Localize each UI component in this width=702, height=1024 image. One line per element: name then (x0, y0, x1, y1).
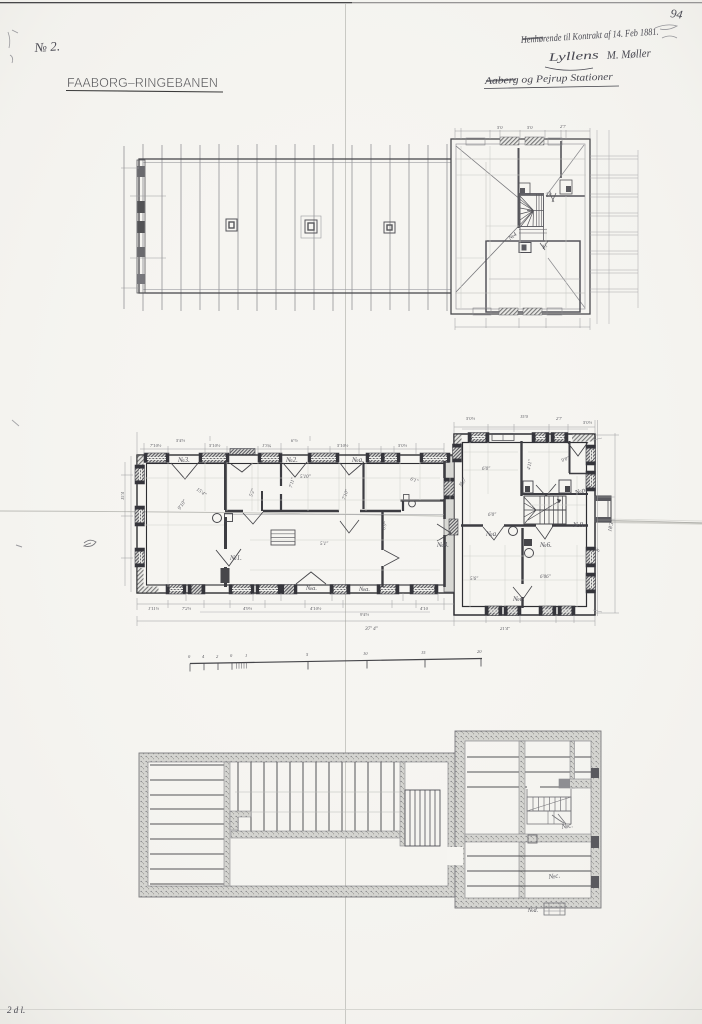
svg-text:5'0: 5'0 (497, 125, 503, 130)
svg-text:6'06": 6'06" (540, 575, 552, 580)
svg-text:9'4½: 9'4½ (360, 612, 370, 617)
svg-text:FAABORG–RINGEBANEN: FAABORG–RINGEBANEN (67, 75, 218, 90)
svg-text:94: 94 (670, 6, 684, 22)
svg-text:№6.: №6. (539, 541, 552, 549)
svg-text:№9.: №9. (572, 521, 585, 529)
svg-text:№a.: №a. (351, 456, 364, 464)
svg-text:M. Møller: M. Møller (606, 48, 652, 62)
svg-text:6'½: 6'½ (291, 438, 298, 443)
svg-text:6'0": 6'0" (482, 467, 491, 472)
svg-text:5'10": 5'10" (300, 475, 312, 480)
svg-text:№d.: №d. (527, 908, 538, 914)
svg-text:1: 1 (245, 653, 247, 658)
svg-text:37' 4": 37' 4" (364, 625, 379, 632)
svg-text:5'0½: 5'0½ (583, 420, 593, 425)
svg-text:15'0: 15'0 (520, 414, 529, 419)
svg-text:№2.: №2. (285, 456, 298, 464)
svg-text:№a.: №a. (305, 585, 317, 592)
svg-text:5'10½: 5'10½ (209, 443, 221, 448)
svg-text:4'9½: 4'9½ (243, 606, 253, 611)
svg-text:5'0: 5'0 (527, 125, 533, 130)
svg-text:№a.: №a. (358, 586, 370, 593)
svg-text:15: 15 (421, 650, 426, 655)
svg-text:2'7: 2'7 (556, 416, 562, 421)
svg-text:5'10½: 5'10½ (337, 443, 349, 448)
svg-text:№4.: №4. (436, 541, 449, 549)
svg-text:20: 20 (477, 649, 482, 654)
svg-text:5'0½: 5'0½ (466, 416, 476, 421)
svg-text:5'1": 5'1" (320, 542, 329, 547)
svg-text:4'10½: 4'10½ (310, 606, 322, 611)
svg-text:4'10: 4'10 (420, 606, 429, 611)
svg-text:№e.: №e. (512, 595, 525, 603)
svg-text:7'2½: 7'2½ (182, 606, 192, 611)
svg-text:2 d l.: 2 d l. (7, 1005, 25, 1015)
svg-text:№a.: №a. (485, 530, 498, 538)
svg-text:№1.: №1. (229, 554, 242, 562)
svg-text:5'6": 5'6" (470, 577, 479, 582)
svg-text:10: 10 (363, 651, 368, 656)
svg-text:1'3¾: 1'3¾ (262, 443, 272, 448)
svg-text:5'4½: 5'4½ (176, 438, 186, 443)
svg-text:№ 2.: № 2. (33, 38, 60, 55)
svg-text:21'4": 21'4" (500, 626, 510, 631)
svg-text:1'11½: 1'11½ (148, 606, 160, 611)
svg-text:6'0": 6'0" (488, 513, 497, 518)
svg-text:7'10½: 7'10½ (150, 443, 162, 448)
svg-text:2'7: 2'7 (560, 124, 566, 129)
svg-text:№3.: №3. (177, 456, 190, 464)
svg-text:15'4: 15'4 (120, 491, 125, 500)
svg-text:5'0½: 5'0½ (398, 443, 408, 448)
